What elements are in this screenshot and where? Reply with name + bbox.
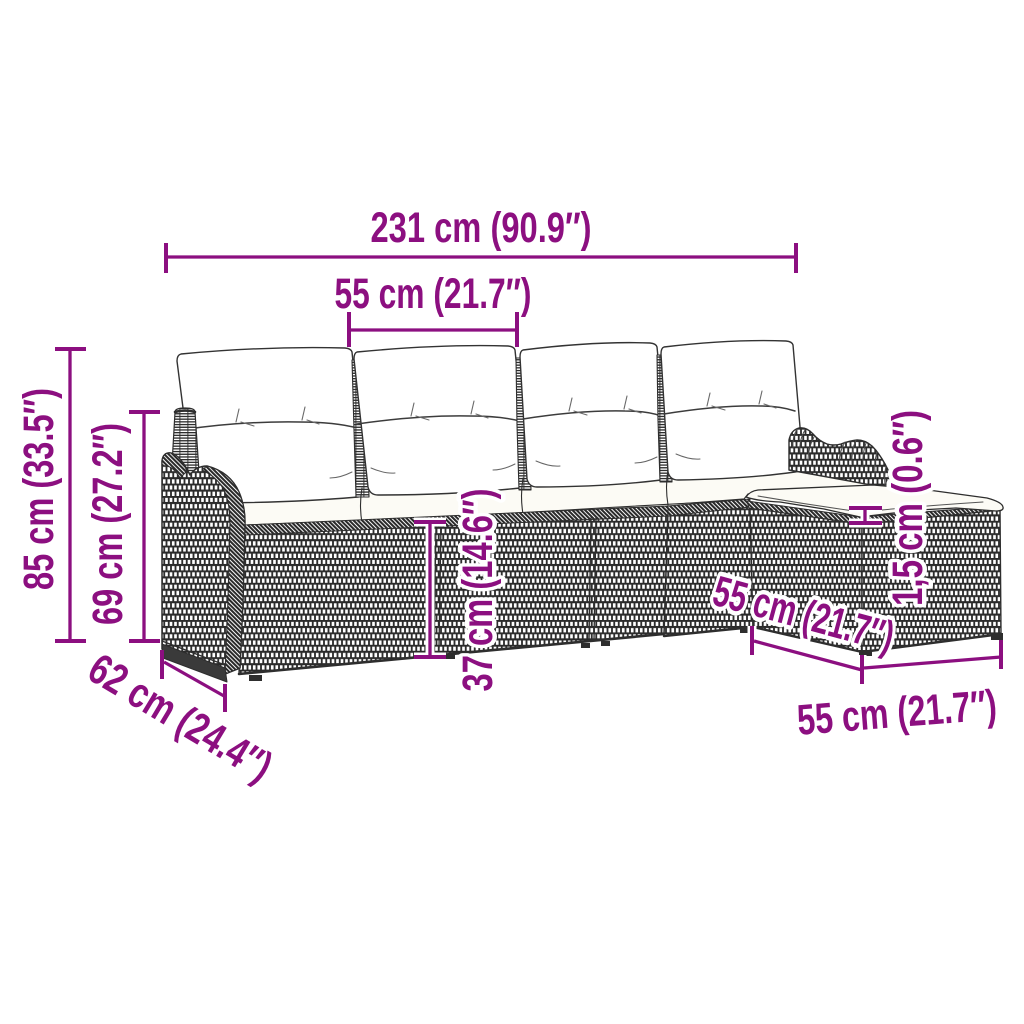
svg-text:55 cm (21.7″): 55 cm (21.7″) (335, 270, 532, 318)
svg-text:69 cm (27.2″): 69 cm (27.2″) (84, 423, 132, 625)
svg-text:231 cm (90.9″): 231 cm (90.9″) (371, 204, 592, 252)
svg-text:37 cm (14.6″): 37 cm (14.6″) (454, 489, 502, 692)
svg-text:1,5 cm (0.6″): 1,5 cm (0.6″) (884, 410, 932, 606)
svg-text:85 cm (33.5″): 85 cm (33.5″) (15, 388, 63, 590)
